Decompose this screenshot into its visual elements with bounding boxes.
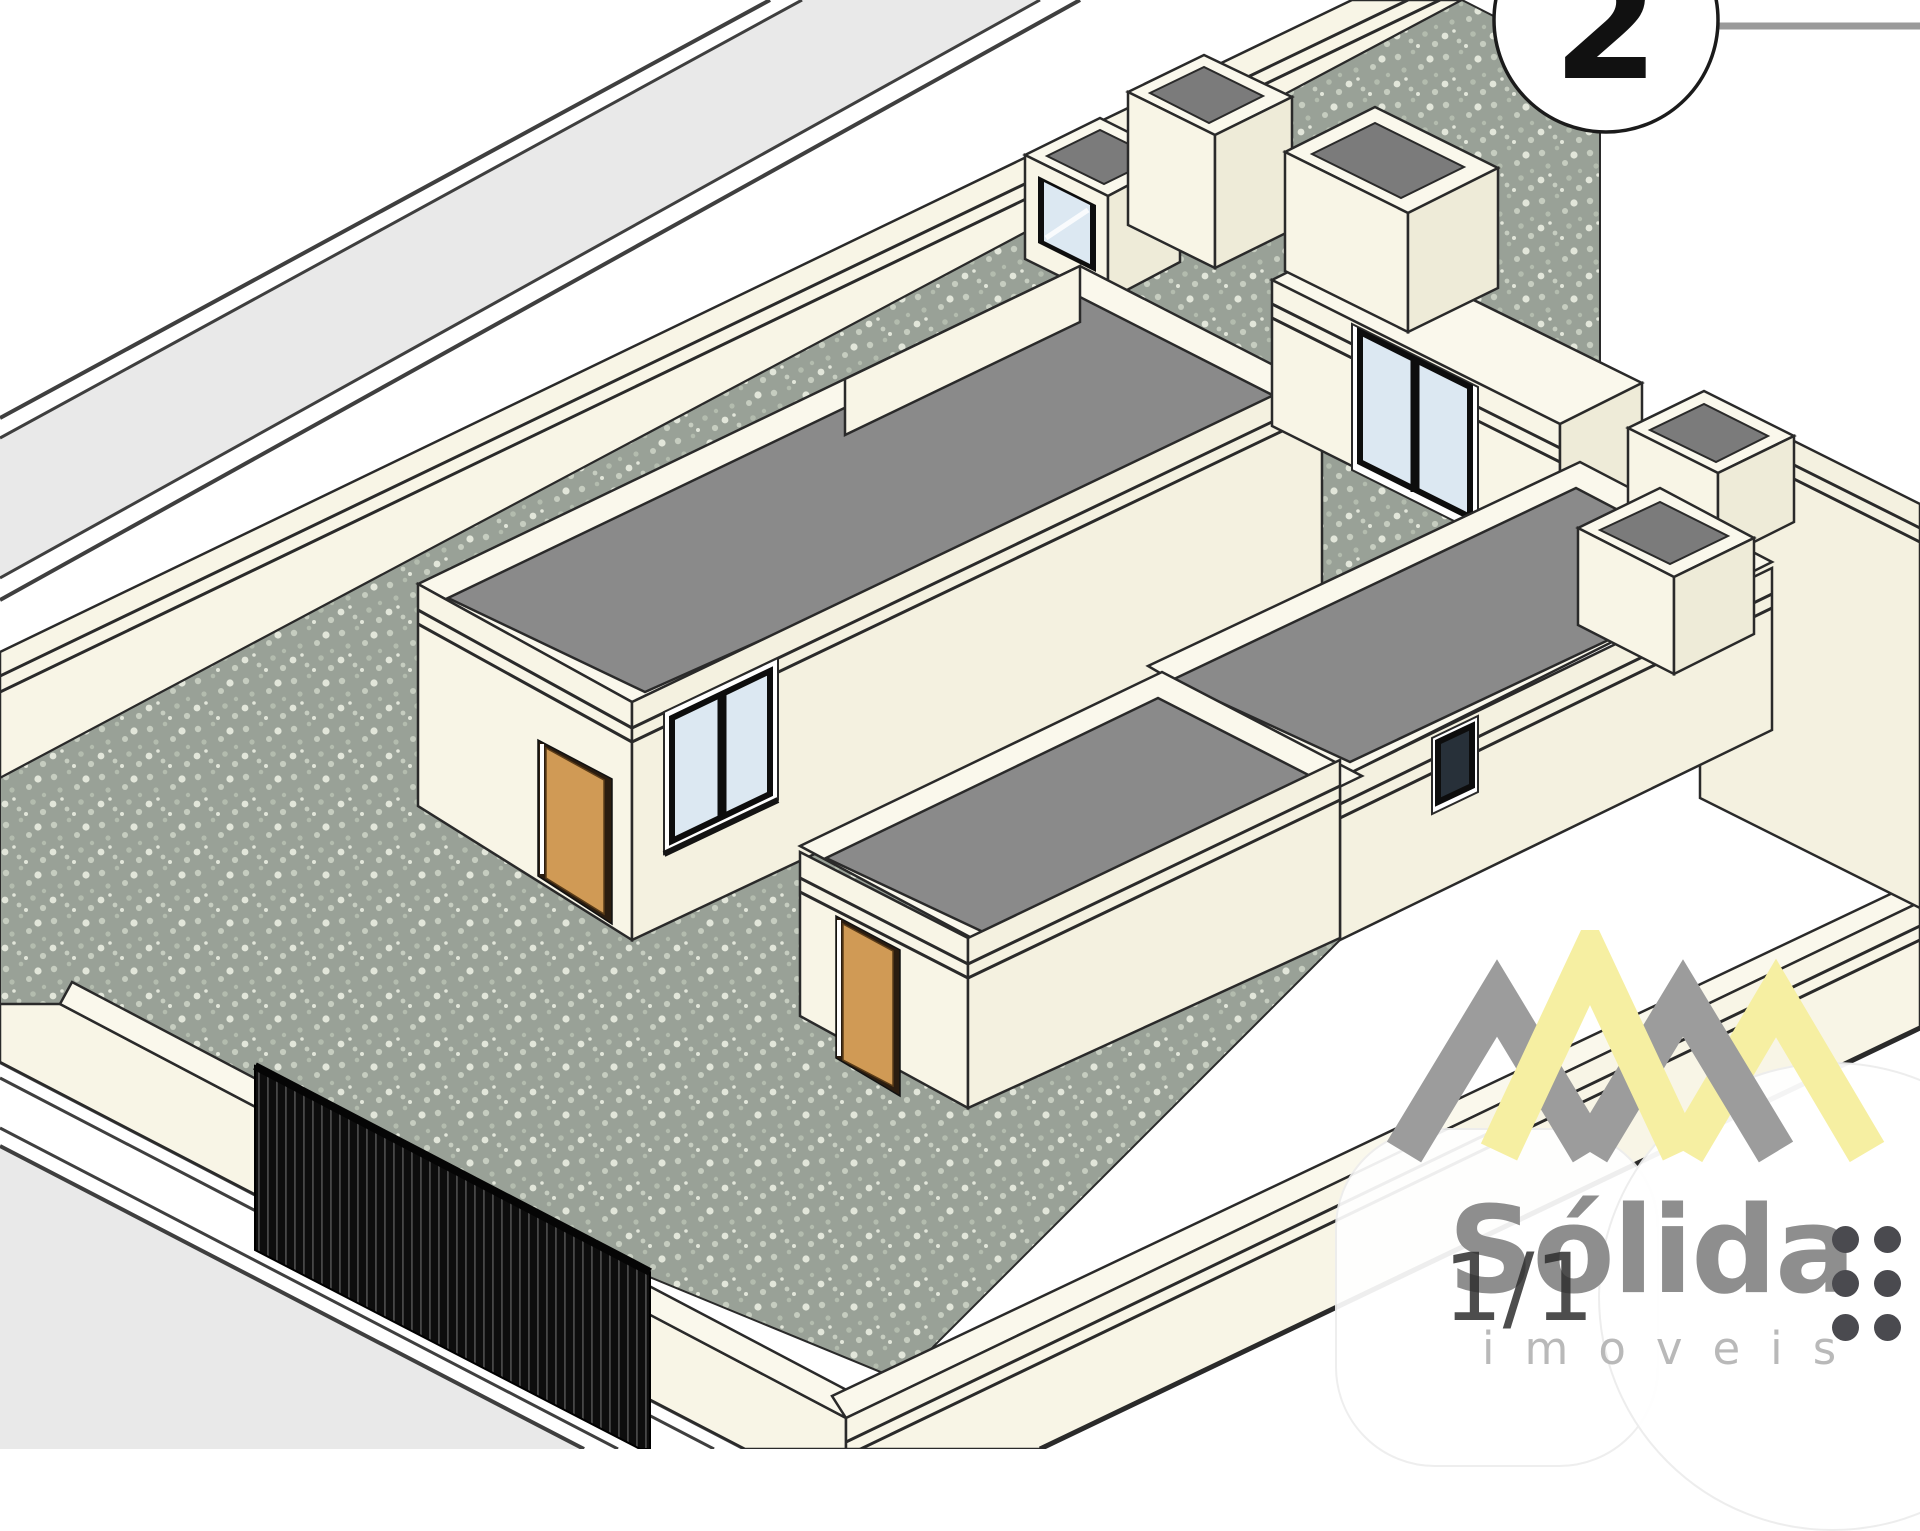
view-callout: 2: [1494, 0, 1920, 132]
drawing-canvas: 2 Sólida 1/1 imoveis: [0, 0, 1920, 1449]
door-panel: [843, 924, 893, 1086]
left-roof-tower: [1128, 55, 1292, 268]
callout-number: 2: [1553, 0, 1659, 114]
window-glass: [1438, 726, 1472, 802]
scene-svg: 2: [0, 0, 1920, 1449]
